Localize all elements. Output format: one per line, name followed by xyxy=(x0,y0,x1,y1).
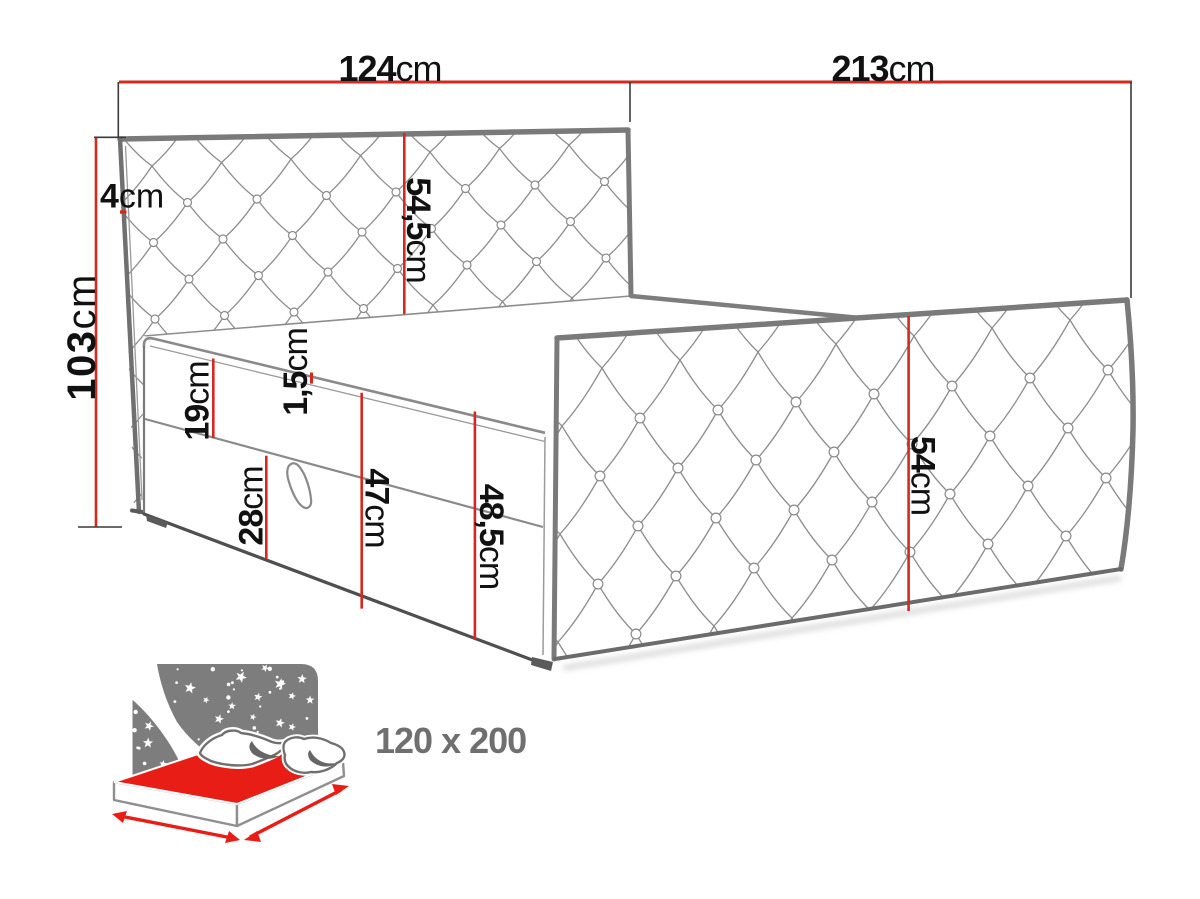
svg-text:213cm: 213cm xyxy=(831,48,934,89)
svg-text:103cm: 103cm xyxy=(60,273,104,401)
svg-text:19cm: 19cm xyxy=(179,361,217,440)
svg-text:124cm: 124cm xyxy=(338,48,441,89)
svg-text:28cm: 28cm xyxy=(233,466,271,545)
svg-text:47cm: 47cm xyxy=(358,468,396,547)
svg-text:120 x 200: 120 x 200 xyxy=(375,720,526,761)
svg-text:54cm: 54cm xyxy=(904,436,942,515)
svg-text:54,5cm: 54,5cm xyxy=(399,177,437,283)
svg-text:4cm: 4cm xyxy=(100,178,164,216)
svg-text:48,5cm: 48,5cm xyxy=(472,484,510,590)
svg-text:1,5cm: 1,5cm xyxy=(277,328,315,416)
